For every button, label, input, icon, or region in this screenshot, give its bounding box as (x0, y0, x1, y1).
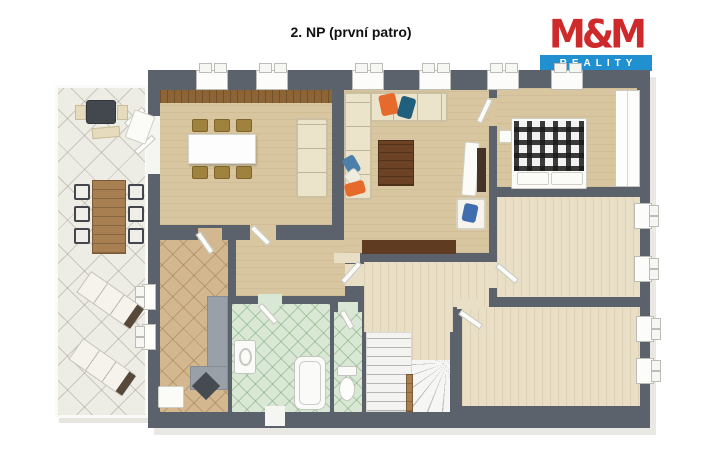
bed-pillow-1 (517, 172, 549, 185)
room-bottomright-floor (462, 307, 640, 406)
grill (86, 100, 116, 124)
dining-chair-1 (192, 119, 208, 132)
window-top-1 (196, 70, 228, 90)
patio-chair-3 (74, 228, 90, 244)
dining-chair-4 (192, 166, 208, 179)
floor-plan-page: 2. NP (první patro) M&M REALITY (0, 0, 702, 468)
room-midright-floor (497, 197, 640, 297)
window-right-2 (634, 256, 652, 282)
stairs-landing (412, 332, 450, 360)
bathroom-window (265, 406, 285, 426)
dining-sofa (296, 118, 328, 198)
bathtub (294, 356, 326, 410)
window-top-5 (487, 70, 519, 90)
entry-window-1 (142, 284, 156, 310)
dining-chair-3 (236, 119, 252, 132)
patio-chair-5 (128, 206, 144, 222)
page-title: 2. NP (první patro) (220, 24, 482, 40)
window-top-2 (256, 70, 288, 90)
window-right-3 (636, 316, 654, 342)
dining-chair-2 (214, 119, 230, 132)
wardrobe (615, 90, 640, 187)
window-top-6 (551, 70, 583, 90)
dining-chair-6 (236, 166, 252, 179)
patio-chair-1 (74, 184, 90, 200)
bed-plaid-blanket (514, 121, 584, 171)
hall-floor (236, 240, 345, 296)
entry-window-2 (142, 324, 156, 350)
wc-cistern (337, 366, 357, 376)
coffee-table (378, 140, 414, 186)
stairs-banister (406, 374, 413, 412)
nightstand (499, 130, 512, 143)
patio-chair-6 (128, 228, 144, 244)
window-right-4 (636, 358, 654, 384)
window-top-3 (352, 70, 384, 90)
entry-doormat (158, 386, 184, 408)
dining-table (188, 134, 256, 164)
bathroom-sink (234, 340, 256, 374)
patio-table (92, 180, 126, 254)
window-top-4 (419, 70, 451, 90)
agency-logo-brand: M&M (540, 15, 652, 55)
window-right-1 (634, 203, 652, 229)
stairs-winder-fan (412, 360, 450, 412)
patio-chair-2 (74, 206, 90, 222)
grill-shelf-right (117, 105, 128, 120)
media-sideboard (362, 240, 456, 254)
dining-sideboard-strip (160, 90, 332, 103)
bed-pillow-2 (551, 172, 583, 185)
bottomright-door-opening (457, 299, 483, 309)
dining-chair-5 (214, 166, 230, 179)
wc-bowl (339, 377, 355, 401)
tv (477, 148, 486, 192)
grill-shelf-left (75, 105, 86, 120)
patio-chair-4 (128, 184, 144, 200)
